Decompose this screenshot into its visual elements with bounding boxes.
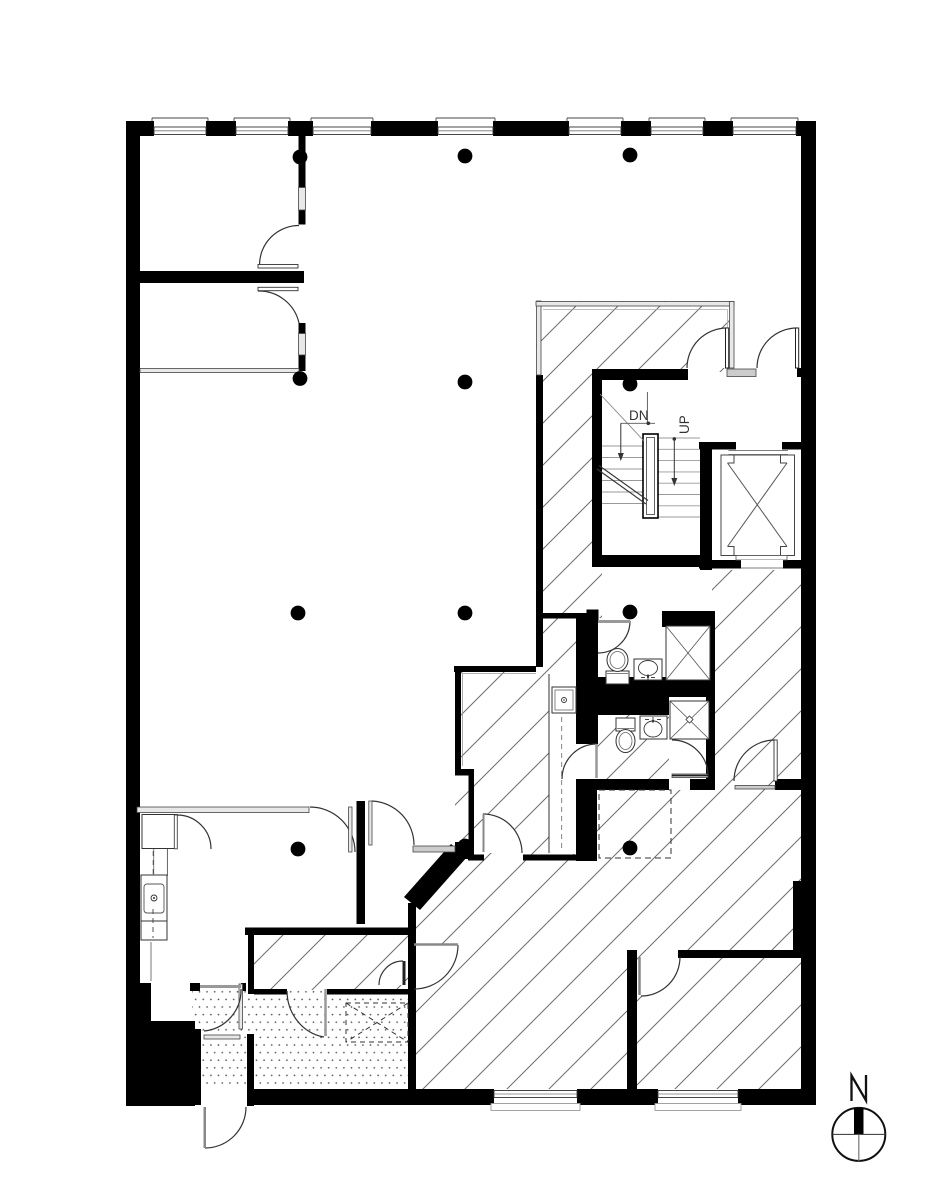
svg-text:DN: DN [629,408,649,423]
svg-text:UP: UP [677,415,692,434]
